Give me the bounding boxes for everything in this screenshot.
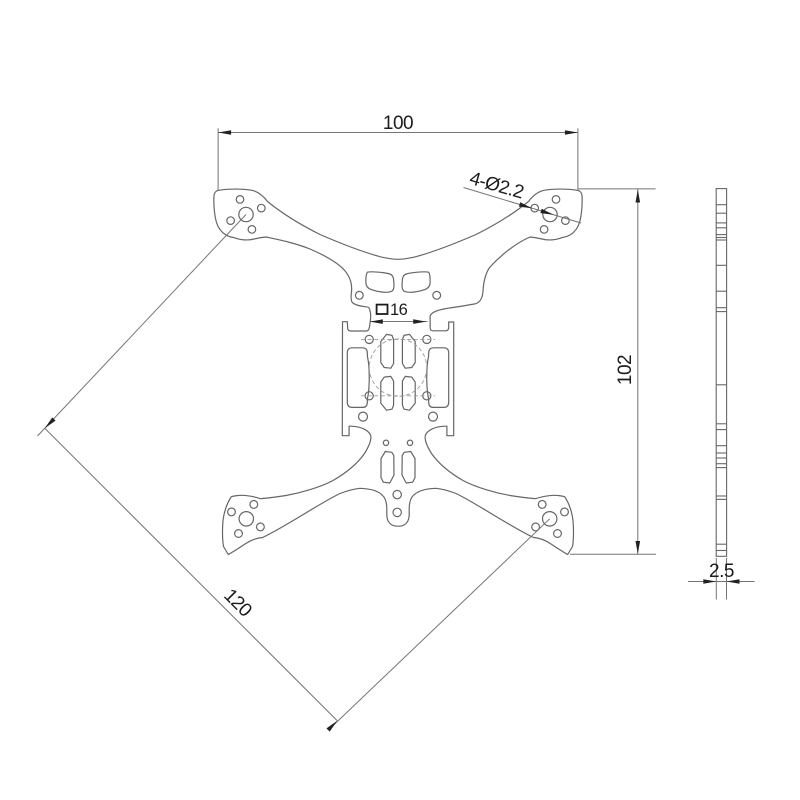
svg-text:16: 16 <box>390 301 408 319</box>
svg-text:100: 100 <box>383 113 413 134</box>
svg-text:2.5: 2.5 <box>709 561 734 582</box>
svg-text:102: 102 <box>615 355 636 385</box>
